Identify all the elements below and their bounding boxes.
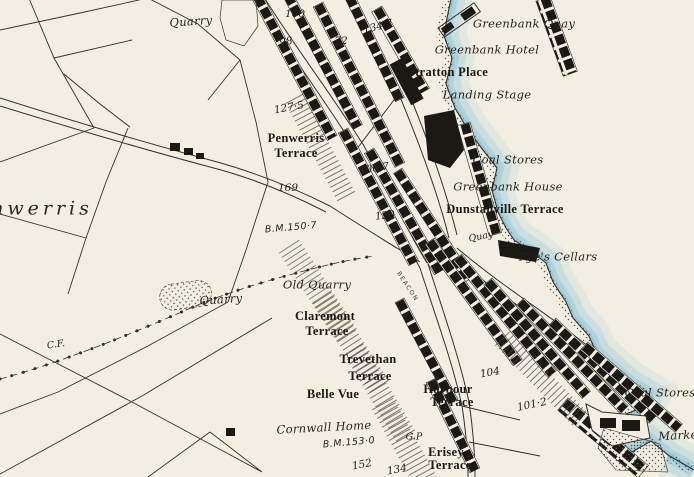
map-canvas[interactable]: Quarry100134·7Greenbank Quay9872Greenban… [0,0,694,477]
map-linework [0,0,694,477]
